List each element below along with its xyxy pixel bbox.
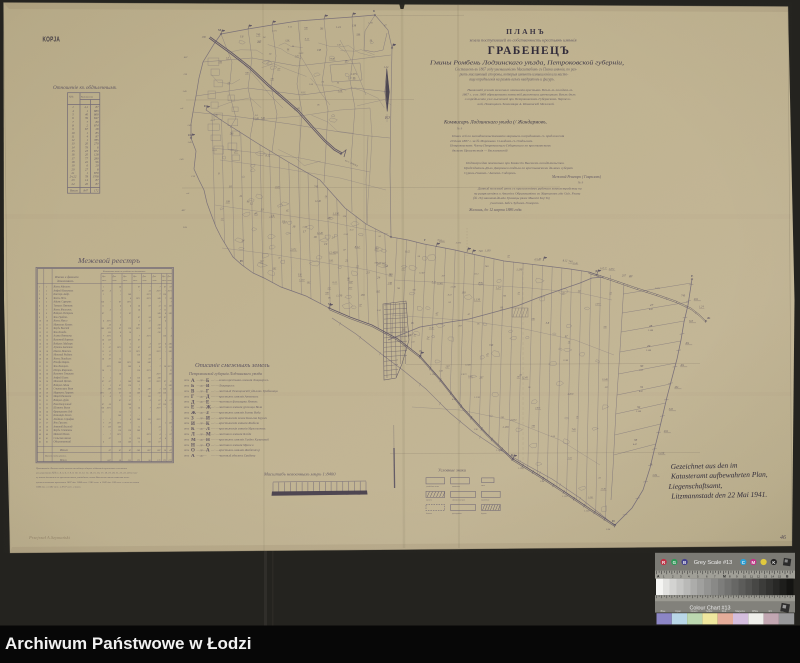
svg-text:23: 23 bbox=[366, 271, 370, 275]
svg-text:1: 1 bbox=[110, 385, 111, 387]
svg-text:отъ: отъ bbox=[184, 411, 190, 415]
svg-text:Павелъ Вонсикъ: Павелъ Вонсикъ bbox=[53, 350, 72, 353]
svg-text:2.071: 2.071 bbox=[290, 248, 297, 251]
svg-text:4: 4 bbox=[171, 335, 172, 338]
svg-text:Миколай Рыбакъ: Миколай Рыбакъ bbox=[53, 354, 73, 357]
svg-text:отъ: отъ bbox=[184, 448, 190, 452]
svg-text:10: 10 bbox=[229, 184, 233, 188]
svg-text:(№ 16) законовѣдѣнію Границы: (№ 16) законовѣдѣнію Границы рѣки Мьюскі… bbox=[473, 196, 550, 200]
svg-text:участокъ Іабсъ Зудновъ Гонор: участокъ Іабсъ Зудновъ Гонорскъ bbox=[489, 201, 539, 205]
svg-text:1: 1 bbox=[120, 381, 121, 383]
svg-text:2.071: 2.071 bbox=[535, 407, 540, 410]
svg-text:домохозяевъ: домохозяевъ bbox=[57, 279, 74, 283]
svg-text:12: 12 bbox=[149, 321, 151, 323]
svg-text:740: 740 bbox=[572, 429, 577, 432]
svg-text:12: 12 bbox=[170, 389, 172, 391]
svg-text:Язепъ Пεπъ: Язепъ Пεπъ bbox=[53, 297, 67, 300]
svg-text:1: 1 bbox=[160, 396, 161, 398]
svg-text:16: 16 bbox=[292, 225, 296, 229]
svg-text:12.40: 12.40 bbox=[405, 335, 411, 338]
svg-text:Г: Г bbox=[424, 238, 426, 242]
svg-text:35: 35 bbox=[39, 415, 41, 417]
svg-text:100: 100 bbox=[288, 494, 291, 496]
svg-text:Янъ Колодз.: Янъ Колодз. bbox=[53, 331, 68, 334]
svg-text:дороги: дороги bbox=[481, 512, 487, 515]
svg-text:2.071: 2.071 bbox=[351, 73, 358, 76]
svg-text:3.8: 3.8 bbox=[546, 322, 550, 325]
svg-text:138: 138 bbox=[317, 49, 322, 52]
svg-text:саж.: саж. bbox=[113, 280, 118, 282]
svg-text:740: 740 bbox=[402, 328, 405, 331]
svg-text:15: 15 bbox=[778, 574, 782, 578]
svg-text:13: 13 bbox=[46, 332, 48, 334]
svg-text:87: 87 bbox=[96, 182, 100, 186]
svg-text:2071: 2071 bbox=[107, 336, 111, 338]
svg-text:Дес.: Дес. bbox=[142, 276, 147, 278]
svg-text:Archiwum Państwowe w Łodzi: Archiwum Państwowe w Łodzi bbox=[5, 634, 252, 653]
svg-text:39: 39 bbox=[46, 430, 48, 432]
svg-text:крестьянскія имѣнія Мржевичевъ: крестьянскія имѣнія Мржевичевъ bbox=[219, 427, 266, 431]
svg-text:B: B bbox=[683, 560, 686, 565]
svg-text:24: 24 bbox=[345, 60, 347, 63]
svg-text:12: 12 bbox=[102, 306, 104, 308]
svg-text:Мартинъ Гавронъ: Мартинъ Гавронъ bbox=[53, 391, 75, 394]
svg-text:240: 240 bbox=[148, 441, 151, 444]
svg-text:24: 24 bbox=[159, 346, 161, 349]
svg-text:12: 12 bbox=[164, 306, 166, 308]
svg-text:Дес.: Дес. bbox=[152, 276, 157, 278]
svg-text:1.24: 1.24 bbox=[384, 66, 389, 69]
svg-text:4: 4 bbox=[120, 331, 121, 334]
svg-text:41: 41 bbox=[46, 437, 48, 440]
svg-text:1.130: 1.130 bbox=[502, 426, 509, 429]
svg-text:3: 3 bbox=[39, 294, 40, 296]
svg-text:2071: 2071 bbox=[107, 408, 111, 410]
svg-text:2071: 2071 bbox=[157, 408, 161, 410]
svg-text:12: 12 bbox=[129, 438, 131, 440]
svg-text:138: 138 bbox=[137, 377, 140, 379]
svg-text:2071: 2071 bbox=[107, 328, 111, 330]
svg-text:12: 12 bbox=[109, 355, 111, 357]
svg-text:Петроковскомъ Члена Петроковск: Петроковскомъ Члена Петроковскаго Губерн… bbox=[449, 144, 551, 148]
svg-text:Мацей Рачковск: Мацей Рачковск bbox=[53, 395, 73, 398]
svg-text:1.130: 1.130 bbox=[439, 240, 445, 243]
svg-text:138: 138 bbox=[163, 336, 166, 338]
svg-text:2: 2 bbox=[39, 290, 40, 292]
svg-text:138: 138 bbox=[226, 200, 231, 203]
svg-text:Межевой реестръ: Межевой реестръ bbox=[77, 257, 141, 265]
svg-text:2.071: 2.071 bbox=[595, 303, 600, 306]
svg-text:39: 39 bbox=[39, 430, 41, 432]
svg-text:2071: 2071 bbox=[147, 370, 151, 372]
svg-text:Сельская школа: Сельская школа bbox=[54, 437, 72, 440]
svg-text:96: 96 bbox=[337, 83, 339, 85]
svg-text:29: 29 bbox=[39, 392, 41, 394]
svg-text:Язепъ Пшибылъ: Язепъ Пшибылъ bbox=[53, 357, 72, 360]
svg-text:138: 138 bbox=[374, 247, 379, 250]
svg-text:24: 24 bbox=[159, 426, 161, 429]
svg-text:8.12: 8.12 bbox=[405, 250, 410, 253]
svg-text:1: 1 bbox=[103, 294, 104, 296]
svg-text:12.40: 12.40 bbox=[437, 282, 443, 285]
svg-text:24: 24 bbox=[138, 308, 140, 311]
svg-text:отъ: отъ bbox=[184, 400, 190, 404]
svg-text:саж.: саж. bbox=[162, 280, 167, 282]
svg-text:Данный межевой актъ съ приложе: Данный межевой актъ съ приложеніемъ рабо… bbox=[477, 186, 582, 191]
svg-text:240: 240 bbox=[101, 327, 104, 330]
svg-text:зуются казенные крестьяне 1607: зуются казенные крестьяне 1607 дес. 1804… bbox=[35, 481, 140, 484]
svg-text:12: 12 bbox=[138, 442, 140, 444]
svg-text:138: 138 bbox=[118, 430, 121, 432]
svg-text:240: 240 bbox=[137, 391, 140, 394]
svg-text:11: 11 bbox=[750, 574, 753, 578]
svg-text:1.130: 1.130 bbox=[336, 294, 343, 297]
svg-text:отъ: отъ bbox=[184, 416, 190, 420]
svg-text:13: 13 bbox=[260, 208, 264, 212]
svg-text:2.071: 2.071 bbox=[510, 419, 517, 422]
svg-text:4: 4 bbox=[165, 320, 166, 323]
svg-text:Станиславъ Воля: Станиславъ Воля bbox=[54, 388, 74, 391]
svg-text:12: 12 bbox=[39, 328, 41, 330]
svg-text:ПЛАНЪ: ПЛАНЪ bbox=[506, 27, 546, 36]
svg-text:4: 4 bbox=[150, 342, 151, 345]
svg-text:крестьянъ имѣнія Антоновъ: крестьянъ имѣнія Антоновъ bbox=[219, 394, 259, 398]
svg-text:2071: 2071 bbox=[147, 298, 151, 300]
svg-text:1: 1 bbox=[171, 328, 172, 330]
svg-text:9: 9 bbox=[46, 317, 47, 319]
svg-text:240: 240 bbox=[158, 312, 161, 315]
svg-text:19: 19 bbox=[46, 355, 48, 357]
svg-text:12: 12 bbox=[757, 574, 761, 578]
svg-text:138: 138 bbox=[128, 328, 131, 330]
svg-text:2071: 2071 bbox=[117, 423, 121, 425]
svg-text:1.24: 1.24 bbox=[343, 233, 348, 236]
svg-text:138: 138 bbox=[148, 377, 151, 379]
svg-text:138: 138 bbox=[158, 392, 161, 394]
svg-text:2071: 2071 bbox=[117, 347, 121, 349]
svg-text:Дес.: Дес. bbox=[112, 276, 117, 278]
svg-text:Янъ Грыгель: Янъ Грыгель bbox=[53, 422, 69, 425]
svg-text:1: 1 bbox=[103, 385, 104, 387]
svg-text:4: 4 bbox=[46, 297, 47, 300]
svg-text:30: 30 bbox=[640, 364, 644, 368]
svg-text:12.40: 12.40 bbox=[294, 107, 300, 110]
svg-text:Итого: Итого bbox=[69, 190, 79, 193]
svg-text:12.40: 12.40 bbox=[573, 262, 579, 265]
svg-text:1.24: 1.24 bbox=[699, 306, 704, 309]
svg-text:М: М bbox=[191, 438, 196, 443]
svg-text:1: 1 bbox=[160, 302, 161, 304]
svg-text:отъ: отъ bbox=[184, 394, 190, 398]
svg-text:1.130: 1.130 bbox=[474, 299, 481, 302]
svg-text:700: 700 bbox=[357, 494, 360, 496]
svg-text:Л: Л bbox=[191, 433, 195, 438]
svg-text:частнаго имѣнія урочища Воля: частнаго имѣнія урочища Воля bbox=[219, 405, 262, 409]
svg-text:25: 25 bbox=[39, 377, 41, 379]
svg-text:12: 12 bbox=[46, 328, 48, 330]
svg-text:№ 9: № 9 bbox=[577, 181, 584, 185]
svg-text:саж.: саж. bbox=[168, 280, 173, 282]
svg-text:1: 1 bbox=[110, 377, 111, 379]
svg-text:240: 240 bbox=[128, 403, 131, 406]
svg-text:138: 138 bbox=[108, 332, 111, 334]
svg-text:32: 32 bbox=[637, 405, 641, 409]
svg-text:А: А bbox=[191, 454, 195, 459]
svg-text:4: 4 bbox=[165, 342, 166, 345]
svg-text:1.130: 1.130 bbox=[562, 495, 568, 498]
svg-text:2.071: 2.071 bbox=[456, 242, 462, 245]
svg-text:42: 42 bbox=[39, 441, 41, 444]
svg-text:24: 24 bbox=[149, 289, 151, 292]
svg-text:24: 24 bbox=[138, 388, 140, 391]
svg-text:8.12: 8.12 bbox=[355, 246, 360, 249]
svg-text:25: 25 bbox=[46, 377, 48, 379]
svg-text:Условные знаки: Условные знаки bbox=[438, 468, 466, 473]
svg-text:И: И bbox=[191, 422, 195, 427]
svg-text:17: 17 bbox=[303, 230, 307, 234]
svg-text:отъ: отъ bbox=[184, 405, 190, 409]
svg-text:частнаго фольварка Ямноль: частнаго фольварка Ямноль bbox=[219, 400, 258, 404]
svg-text:23: 23 bbox=[39, 370, 41, 372]
svg-text:земли крестьянъ имѣнія Люцмерж: земли крестьянъ имѣнія Люцмержъ bbox=[218, 378, 269, 382]
svg-text:Примѣчаніе: Выгонъ подъ весьма: Примѣчаніе: Выгонъ подъ весьма пастбища … bbox=[35, 467, 128, 470]
svg-text:Агата Ямковска: Агата Ямковска bbox=[53, 335, 73, 338]
svg-text:24: 24 bbox=[119, 286, 121, 289]
svg-text:207: 207 bbox=[622, 275, 627, 278]
svg-text:138: 138 bbox=[137, 370, 140, 372]
svg-text:4: 4 bbox=[160, 437, 161, 440]
svg-text:2.071: 2.071 bbox=[299, 53, 304, 55]
svg-text:12: 12 bbox=[129, 351, 131, 353]
svg-text:8.12: 8.12 bbox=[266, 155, 271, 158]
svg-text:Лукашъ Антонов: Лукашъ Антонов bbox=[53, 346, 74, 349]
svg-text:KOPJA: KOPJA bbox=[43, 37, 61, 44]
svg-text:Масштабъ невоенныхъ мѣръ 1:840: Масштабъ невоенныхъ мѣръ 1:8400 bbox=[263, 472, 336, 477]
svg-text:4: 4 bbox=[103, 320, 104, 323]
svg-text:Юзефа Ямроз.: Юзефа Ямроз. bbox=[53, 361, 70, 364]
svg-text:Коммисаръ Лодзинскаго уѣзда (/: Коммисаръ Лодзинскаго уѣзда (/ Жандармов… bbox=[443, 119, 547, 126]
svg-text:Казимиръ Клосъ: Казимиръ Клосъ bbox=[53, 414, 73, 417]
svg-text:740: 740 bbox=[479, 250, 484, 253]
svg-text:34: 34 bbox=[39, 410, 41, 413]
svg-text:740: 740 bbox=[397, 287, 400, 290]
svg-text:21: 21 bbox=[345, 259, 349, 263]
svg-text:9: 9 bbox=[39, 317, 40, 319]
svg-text:1: 1 bbox=[110, 419, 111, 421]
svg-text:№ 9: № 9 bbox=[456, 127, 463, 131]
svg-text:4: 4 bbox=[120, 335, 121, 338]
svg-text:Green: Green bbox=[691, 610, 698, 613]
svg-text:Гмины Ромбень Лодзинскаго уѣзд: Гмины Ромбень Лодзинскаго уѣзда, Петроко… bbox=[429, 60, 625, 67]
svg-text:1: 1 bbox=[165, 423, 166, 425]
svg-text:болото: болото bbox=[426, 512, 432, 515]
svg-text:4: 4 bbox=[110, 308, 111, 311]
svg-text:24: 24 bbox=[102, 369, 104, 372]
svg-text:19: 19 bbox=[39, 355, 41, 357]
svg-text:240: 240 bbox=[118, 361, 121, 364]
svg-text:крестьянъ имѣнія Жабieniец): крестьянъ имѣнія Жабieniец) bbox=[219, 448, 260, 452]
svg-text:4: 4 bbox=[165, 312, 166, 315]
svg-text:13: 13 bbox=[39, 332, 41, 334]
svg-text:Дес.: Дес. bbox=[161, 276, 166, 278]
svg-text:1.24: 1.24 bbox=[336, 26, 341, 29]
svg-text:138: 138 bbox=[148, 396, 151, 398]
svg-text:крестьянскія имѣнія Жабичк: крестьянскія имѣнія Жабичк bbox=[219, 421, 259, 425]
svg-text:Выгонъ подъ кресть.: Выгонъ подъ кресть. bbox=[45, 455, 67, 458]
svg-text:240: 240 bbox=[169, 312, 172, 315]
svg-text:изъ участковъ №№ 1, 4, 5, 6, 7: изъ участковъ №№ 1, 4, 5, 6, 7, 8, 9, 10… bbox=[36, 472, 138, 475]
svg-text:2071: 2071 bbox=[136, 351, 140, 353]
svg-text:Петроковской губерніи Лодзинск: Петроковской губерніи Лодзинскаго уѣзда bbox=[188, 371, 262, 376]
svg-text:Антоній Блажей: Антоній Блажей bbox=[53, 426, 74, 429]
svg-text:4: 4 bbox=[110, 391, 111, 394]
svg-text:740: 740 bbox=[489, 344, 494, 347]
svg-text:0: 0 bbox=[276, 494, 277, 496]
svg-text:15: 15 bbox=[282, 220, 286, 224]
svg-text:22: 22 bbox=[46, 366, 48, 368]
svg-text:138: 138 bbox=[361, 294, 366, 297]
svg-text:Подтверждая поземельно при Ком: Подтверждая поземельно при Комиссіи Высш… bbox=[465, 161, 565, 165]
svg-text:12: 12 bbox=[164, 309, 166, 311]
svg-text:8.12: 8.12 bbox=[333, 281, 338, 284]
svg-text:4: 4 bbox=[160, 433, 161, 436]
svg-text:138: 138 bbox=[118, 442, 121, 444]
svg-text:24: 24 bbox=[46, 373, 48, 376]
svg-text:138: 138 bbox=[128, 430, 131, 432]
svg-text:240: 240 bbox=[128, 365, 131, 368]
svg-text:Blue: Blue bbox=[661, 610, 666, 613]
svg-text:240: 240 bbox=[128, 380, 131, 383]
svg-text:847: 847 bbox=[84, 189, 89, 193]
svg-text:сѣнокосныя руч.: сѣнокосныя руч. bbox=[452, 500, 466, 502]
svg-text:—до—: —до— bbox=[196, 454, 208, 458]
svg-text:Общественный: Общественный bbox=[54, 441, 72, 444]
svg-text:5: 5 bbox=[39, 302, 40, 304]
svg-text:1.120: 1.120 bbox=[658, 452, 665, 455]
svg-text:12.40: 12.40 bbox=[450, 285, 456, 288]
svg-text:21: 21 bbox=[39, 362, 41, 364]
svg-text:Андрей Козликовъ: Андрей Козликовъ bbox=[53, 289, 74, 292]
svg-text:12: 12 bbox=[129, 396, 131, 398]
svg-text:33: 33 bbox=[634, 438, 638, 442]
svg-text:12: 12 bbox=[170, 370, 172, 372]
svg-text:крестьянскія земли Кальска Кру: крестьянскія земли Кальска Крушч bbox=[219, 416, 267, 420]
svg-text:крестьянъ имѣнія Глудно Казано: крестьянъ имѣнія Глудно Казановой bbox=[219, 436, 269, 441]
svg-text:1: 1 bbox=[165, 328, 166, 330]
svg-text:42: 42 bbox=[46, 441, 48, 444]
svg-text:2071: 2071 bbox=[157, 381, 161, 383]
svg-text:240: 240 bbox=[128, 441, 131, 444]
svg-text:740: 740 bbox=[256, 34, 261, 37]
svg-text:пахатная: пахатная bbox=[452, 486, 460, 488]
svg-text:1: 1 bbox=[130, 411, 131, 413]
svg-text:46: 46 bbox=[780, 534, 786, 541]
svg-text:1.130: 1.130 bbox=[333, 212, 340, 215]
svg-text:2: 2 bbox=[46, 290, 47, 292]
svg-text:2071: 2071 bbox=[136, 298, 140, 300]
svg-text:Люцмержъ: Люцмержъ bbox=[218, 384, 235, 388]
svg-text:12: 12 bbox=[102, 351, 104, 353]
svg-text:12: 12 bbox=[159, 306, 161, 308]
svg-text:З: З bbox=[191, 417, 194, 422]
svg-text:Язепъ Абушекъ: Язепъ Абушекъ bbox=[53, 286, 71, 289]
svg-text:4: 4 bbox=[139, 365, 140, 368]
svg-text:20 Іюня 1887 г. за № Мировымъ: 20 Іюня 1887 г. за № Мировымъ Съѣздомъ с… bbox=[450, 139, 533, 143]
svg-text:240: 240 bbox=[128, 293, 131, 296]
svg-text:13: 13 bbox=[764, 574, 768, 578]
svg-text:1: 1 bbox=[110, 370, 111, 372]
svg-text:1: 1 bbox=[171, 430, 172, 432]
svg-text:12.40: 12.40 bbox=[465, 364, 471, 367]
svg-text:Якубъ Волскій: Якубъ Волскій bbox=[53, 327, 70, 330]
svg-text:12.40: 12.40 bbox=[384, 265, 389, 268]
svg-text:1.130: 1.130 bbox=[584, 509, 590, 512]
svg-text:1.130: 1.130 bbox=[430, 373, 436, 376]
svg-text:138: 138 bbox=[148, 419, 151, 421]
svg-text:8.12: 8.12 bbox=[213, 149, 218, 152]
svg-text:31: 31 bbox=[46, 400, 48, 402]
svg-text:24: 24 bbox=[138, 407, 140, 410]
svg-text:20: 20 bbox=[85, 182, 89, 186]
svg-text:Дес.: Дес. bbox=[132, 276, 137, 278]
svg-text:200: 200 bbox=[299, 494, 302, 496]
svg-text:Томашъ Пятковъ: Томашъ Пятковъ bbox=[54, 305, 74, 308]
svg-text:138: 138 bbox=[101, 408, 104, 410]
svg-text:1: 1 bbox=[120, 370, 121, 372]
svg-text:2.071: 2.071 bbox=[568, 393, 575, 396]
svg-text:отъ: отъ bbox=[184, 389, 190, 393]
svg-text:21: 21 bbox=[46, 362, 48, 364]
svg-text:лѣсъ: лѣсъ bbox=[480, 485, 485, 487]
svg-text:172: 172 bbox=[94, 189, 99, 193]
svg-text:12: 12 bbox=[138, 427, 140, 429]
svg-text:12: 12 bbox=[149, 392, 151, 394]
svg-text:отъ: отъ bbox=[184, 437, 190, 441]
svg-text:24: 24 bbox=[102, 339, 104, 342]
svg-text:2.071: 2.071 bbox=[609, 268, 616, 271]
svg-text:Янъ Грабекъ: Янъ Грабекъ bbox=[53, 316, 69, 319]
svg-text:Шимонъ Вильк: Шимонъ Вильк bbox=[53, 407, 71, 410]
svg-text:Андрей Гаикъ: Андрей Гаикъ bbox=[53, 376, 70, 379]
svg-text:Итого: Итого bbox=[59, 449, 69, 452]
svg-text:частный Тимощинскій удѣлокъ Гр: частный Тимощинскій удѣлокъ Гребѣница bbox=[219, 388, 278, 393]
svg-text:M: M bbox=[751, 560, 755, 565]
svg-text:о опредѣленію уже высотной при: о опредѣленію уже высотной при Петроковс… bbox=[465, 96, 571, 101]
svg-text:отъ: отъ bbox=[184, 421, 190, 425]
svg-text:4: 4 bbox=[130, 305, 131, 308]
svg-text:Касперъ Андр.: Касперъ Андр. bbox=[53, 293, 70, 296]
svg-text:Миколай Цεпекъ: Миколай Цεпекъ bbox=[53, 380, 73, 383]
svg-text:138: 138 bbox=[137, 438, 140, 440]
svg-text:2071: 2071 bbox=[168, 366, 172, 368]
svg-text:Янъ Блащикъ: Янъ Блащикъ bbox=[53, 365, 69, 368]
svg-text:138: 138 bbox=[101, 302, 104, 304]
svg-text:Войцехъ Дуда: Войцехъ Дуда bbox=[54, 399, 70, 402]
svg-text:20: 20 bbox=[335, 250, 339, 254]
svg-text:саж.: саж. bbox=[143, 280, 148, 282]
svg-text:24: 24 bbox=[119, 373, 121, 376]
svg-text:14: 14 bbox=[771, 574, 775, 578]
svg-text:24: 24 bbox=[72, 182, 76, 186]
svg-text:Роха Калужный: Роха Калужный bbox=[53, 403, 72, 406]
svg-text:33: 33 bbox=[39, 408, 41, 410]
svg-text:усадебная земля: усадебная земля bbox=[425, 485, 439, 488]
svg-text:на разрѣшеніяхъ и Аньскіхъ Обр: на разрѣшеніяхъ и Аньскіхъ Образованіяхъ… bbox=[474, 191, 581, 195]
svg-text:240: 240 bbox=[118, 426, 121, 429]
svg-text:M: M bbox=[723, 575, 726, 579]
svg-text:неудобная: неудобная bbox=[481, 499, 489, 502]
svg-text:Матвей Плохъ: Матвей Плохъ bbox=[53, 433, 71, 436]
